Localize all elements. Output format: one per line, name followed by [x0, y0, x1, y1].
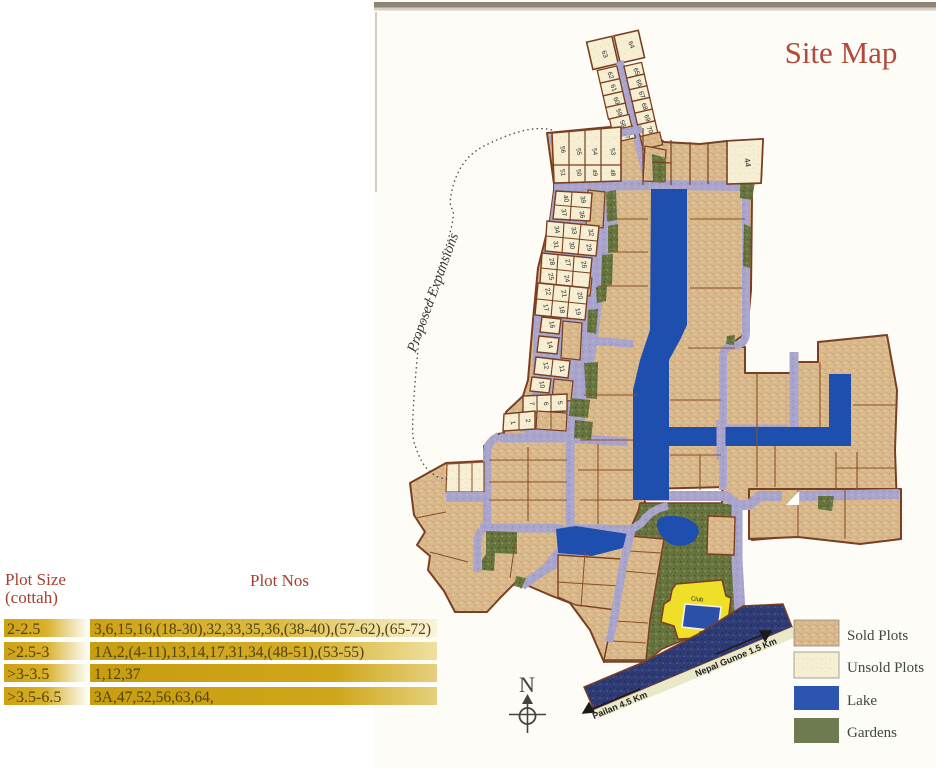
svg-text:Lake: Lake [847, 693, 877, 709]
svg-text:Plot Nos: Plot Nos [250, 571, 309, 590]
svg-text:2-2.5: 2-2.5 [7, 621, 40, 638]
svg-text:N: N [519, 672, 535, 697]
svg-text:3,6,15,16,(18-30),32,33,35,36,: 3,6,15,16,(18-30),32,33,35,36,(38-40),(5… [94, 621, 431, 638]
svg-text:Unsold Plots: Unsold Plots [847, 660, 924, 676]
svg-text:(cottah): (cottah) [5, 588, 58, 607]
svg-text:1,12,37: 1,12,37 [94, 666, 141, 683]
svg-text:Site Map: Site Map [785, 35, 898, 70]
svg-text:>3-3.5: >3-3.5 [7, 666, 49, 683]
svg-text:1A,2,(4-11),13,14,17,31,34,(48: 1A,2,(4-11),13,14,17,31,34,(48-51),(53-5… [94, 644, 364, 661]
svg-text:>2.5-3: >2.5-3 [7, 644, 49, 661]
svg-text:Gardens: Gardens [847, 725, 897, 741]
svg-text:3A,47,52,56,63,64,: 3A,47,52,56,63,64, [94, 689, 214, 706]
svg-text:Sold Plots: Sold Plots [847, 628, 908, 644]
svg-text:>3.5-6.5: >3.5-6.5 [7, 689, 61, 706]
svg-text:Plot Size: Plot Size [5, 570, 66, 589]
